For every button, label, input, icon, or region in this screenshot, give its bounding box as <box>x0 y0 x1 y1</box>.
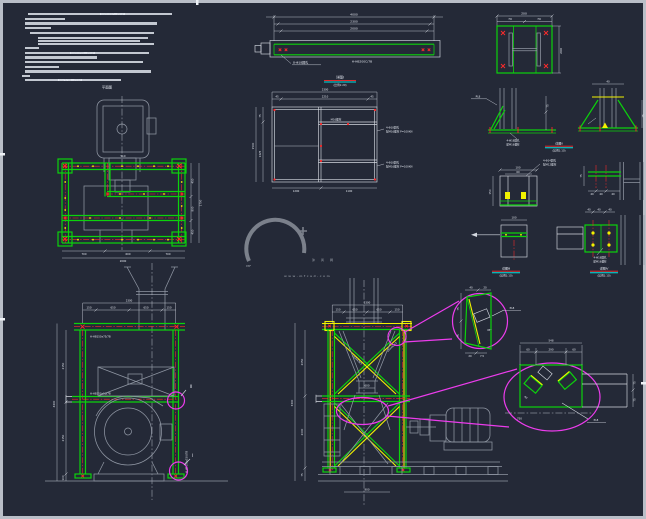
dim-label: 2150 <box>61 434 65 441</box>
dim-label: 40 <box>469 286 473 290</box>
dim-label: 75 <box>300 473 304 477</box>
bolted-plate-detail: 40 40 40 4-Φ18圆孔 配M16螺栓 <box>557 208 644 265</box>
beam-detail-view: 4000 2300 2000 8-Φ18圆孔 H-HB200C/7B 详图Ⅰ (… <box>255 13 443 87</box>
dim-label: 450 <box>191 178 195 183</box>
dim-label: 20 <box>468 354 472 358</box>
dim-label: 40 <box>590 192 594 196</box>
dim-label: 900 <box>365 488 370 492</box>
dim-label: 700 <box>82 252 87 256</box>
hole-label: 配M16螺栓 <box>593 259 607 263</box>
dim-label: 100 <box>61 475 65 480</box>
dim-label: 1200 <box>293 189 300 193</box>
dim-label: 510 <box>121 154 126 158</box>
dim-label: 290 <box>549 348 554 352</box>
hole-label: 配M16螺栓 P=100KN <box>386 130 413 134</box>
dim-label: 75 <box>258 114 262 118</box>
braced-frame-elevation-view: L63x63x5 L63x63x5 600 900 <box>290 278 517 505</box>
plan-view-center: M16螺栓 4-Φ18圆孔 配M16螺栓 P=100KN 4-Φ18圆孔 配M1… <box>251 88 413 193</box>
dim-label: 100 <box>512 216 517 220</box>
dim-label: 75 <box>641 114 645 118</box>
dim-label: 60 <box>572 348 576 352</box>
watermark-url: www.mfcad.com <box>284 274 331 278</box>
dim-label: 75 <box>579 174 583 178</box>
base-plate-detail-callout: 548 60 290 60 75 75 40 750 PL8 <box>504 339 637 431</box>
hole-label: 4-Φ18圆孔 <box>386 161 400 165</box>
plate-label: PL8 <box>594 418 599 422</box>
ruler-tick <box>0 318 5 321</box>
cad-viewer-canvas: 4000 2300 2000 8-Φ18圆孔 H-HB200C/7B 详图Ⅰ (… <box>0 0 646 519</box>
dim-label: 45 <box>275 95 279 99</box>
watermark-logo: MF <box>246 264 252 268</box>
watermark-brand: 沐风网 <box>312 257 339 262</box>
dim-label: 2000 <box>350 27 358 31</box>
dim-label: 150 <box>395 308 400 312</box>
dim-label: 75 <box>456 334 460 338</box>
plate-label: PL8 <box>476 95 481 99</box>
hole-label: 4-Φ18圆孔 <box>506 139 520 143</box>
dim-label: 40 <box>597 208 601 212</box>
hole-label: 配M16螺栓 <box>506 142 520 146</box>
view-scale: (比例1:10) <box>552 149 565 153</box>
hole-label: 4-Φ18圆孔 <box>386 126 400 130</box>
column-base-detail-left: 75 PL8 4-Φ18圆孔 配M16螺栓 <box>471 88 556 146</box>
hole-label: 配M12螺栓 <box>543 163 557 167</box>
fan-elevation-view: H-HB150x75/7B H-HB150x50/7B H-HB150x150/… <box>45 263 228 500</box>
gusset-bracket-detail-callout: 40 20 75 75 20 7.5 45° PL8 <box>453 286 522 358</box>
dim-label: 150 <box>488 189 492 194</box>
dim-label: 7.5 <box>480 354 484 358</box>
dim-label: 4000 <box>350 13 358 17</box>
dim-label: 450 <box>191 229 195 234</box>
section-mark: H-HB150x75/7B <box>90 334 111 338</box>
dim-label: 60 <box>526 348 530 352</box>
dim-label: 1500 <box>251 142 255 149</box>
view-title: 详图Ⅲ <box>502 266 510 271</box>
dim-label: 70 <box>508 17 512 21</box>
dim-label: 1100 <box>346 189 353 193</box>
watermark: MF 沐风网 www.mfcad.com <box>246 220 339 278</box>
ibeam-splice-detail: 40 40 40 75 <box>579 162 644 200</box>
ruler-tick <box>196 0 199 5</box>
hole-label: 8-Φ18圆孔 <box>293 60 308 65</box>
dim-label: 40 <box>599 192 603 196</box>
view-scale: (比例1:20) <box>333 83 346 87</box>
dim-label: 2300 <box>364 301 371 305</box>
detail-titles-row: 详图Ⅲ (比例1:10) 详图Ⅳ (比例1:10) <box>492 266 618 278</box>
dim-label: 2050 <box>300 358 304 365</box>
brace-mark: L63x63x5 <box>351 354 363 366</box>
dim-label: 60 <box>516 170 520 174</box>
dim-label: 600 <box>126 252 131 256</box>
dim-label: 75 <box>546 104 550 108</box>
dim-label: 45 <box>370 95 374 99</box>
ruler-tick <box>641 382 646 385</box>
column-base-detail-right: 75 40 详图Ⅱ (比例1:10) <box>545 80 645 153</box>
dim-label: 650 <box>111 306 116 310</box>
dim-label: 100 <box>516 166 521 170</box>
dim-label: 75 <box>633 381 637 385</box>
dim-label: 800 <box>191 206 195 211</box>
dim-label: 40 <box>606 80 610 84</box>
bracket-bolt-detail: 100 60 150 4-Φ14圆孔 配M12螺栓 <box>488 159 557 206</box>
dim-label: 2000 <box>120 259 127 263</box>
view-title: 详图Ⅰ <box>336 75 344 80</box>
dim-label: 650 <box>353 308 358 312</box>
plan-view-left: 平面图 <box>58 85 203 263</box>
dim-label: 150 <box>167 306 172 310</box>
dim-label: 650 <box>144 306 149 310</box>
brace-mark: L63x63x5 <box>386 341 398 353</box>
dim-label: 4400 <box>52 400 56 407</box>
view-title: 详图Ⅱ <box>555 141 563 146</box>
callout-label: Ⅰ <box>192 453 193 458</box>
dim-label: 75 <box>456 307 460 311</box>
dim-label: 75 <box>633 398 637 402</box>
dim-label: 40 <box>587 208 591 212</box>
view-title: 详图Ⅳ <box>600 266 609 271</box>
base-plate-detail-view: 200 70 70 200 <box>496 12 564 73</box>
watermark-swoosh-icon <box>246 220 304 261</box>
dim-label: 2000 <box>300 428 304 435</box>
hole-label: 配M16螺栓 P=100KN <box>386 165 413 169</box>
plate-side-detail: 100 <box>471 216 527 260</box>
angle-label: 45° <box>487 328 492 332</box>
dim-label: 40 <box>611 192 615 196</box>
dim-label: 2210 <box>322 95 329 99</box>
dim-label: 2300 <box>126 299 133 303</box>
dim-label: 2150 <box>61 362 65 369</box>
plate-label: PL8 <box>510 306 515 310</box>
dim-label: 200 <box>559 48 563 54</box>
hole-label: 4-Φ18圆孔 <box>593 256 607 260</box>
view-scale: (比例1:10) <box>597 274 610 278</box>
view-title: 平面图 <box>102 85 113 90</box>
dim-label: 2300 <box>350 20 358 24</box>
dim-label: 2300 <box>322 88 329 92</box>
dim-label: 650 <box>377 308 382 312</box>
section-mark: H-HB200C/7B <box>352 60 372 64</box>
callout-label: Ⅱ <box>190 384 192 389</box>
dim-label: 600 <box>365 384 370 388</box>
bolt-note: M16螺栓 <box>331 118 342 122</box>
dim-label: 40 <box>608 208 612 212</box>
dim-label: 750 <box>517 417 522 421</box>
dim-label: 20 <box>483 286 487 290</box>
ruler-tick <box>0 153 5 156</box>
dim-label: 1425 <box>258 150 262 157</box>
dim-label: 40 <box>523 395 528 400</box>
dim-label: 200 <box>521 12 527 16</box>
hole-label: 4-Φ14圆孔 <box>543 159 557 163</box>
dim-label: 150 <box>87 306 92 310</box>
dim-label: 3300 <box>290 399 294 406</box>
dim-label: 700 <box>166 252 171 256</box>
view-scale: (比例1:10) <box>499 274 512 278</box>
dim-label: 548 <box>549 339 554 343</box>
dim-label: 1700 <box>199 199 203 206</box>
dim-label: 150 <box>336 308 341 312</box>
dim-label: 70 <box>537 17 541 21</box>
